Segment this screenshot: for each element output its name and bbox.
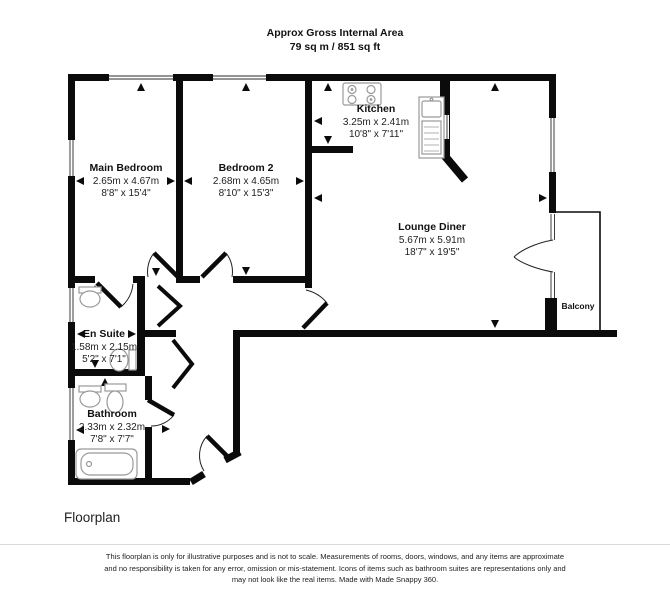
hall-lounge-door-leaf — [303, 303, 327, 328]
room-label-kitchen: Kitchen 3.25m x 2.41m 10'8" x 7'11" — [343, 103, 409, 140]
window — [549, 118, 556, 172]
walls — [68, 74, 617, 485]
arrow-down-icon — [324, 136, 332, 144]
arrow-down-icon — [152, 268, 160, 276]
arrow-left-icon — [314, 117, 322, 125]
arrow-up-icon — [242, 83, 250, 91]
door-arc — [151, 415, 174, 426]
room-imperial: 8'10" x 15'3" — [219, 188, 274, 199]
window — [68, 288, 75, 322]
room-imperial: 10'8" x 7'11" — [349, 129, 404, 140]
arrow-up-icon — [491, 83, 499, 91]
arrow-up-icon — [324, 83, 332, 91]
window — [109, 74, 173, 81]
room-metric: 5.67m x 5.91m — [399, 235, 465, 246]
balcony-door-arc — [514, 257, 553, 272]
entrance-wall-segment — [191, 474, 204, 482]
main-bedroom-door-leaf — [154, 253, 178, 277]
window — [68, 140, 75, 176]
room-name: Bathroom — [87, 408, 137, 420]
arrow-down-icon — [242, 267, 250, 275]
front-door-leaf — [207, 436, 228, 457]
room-label-bathroom: Bathroom 2.33m x 2.32m 7'8" x 7'7" — [79, 408, 145, 445]
room-label-balcony: Balcony — [561, 301, 594, 311]
kitchen-angled-wall — [444, 155, 465, 180]
disclaimer-line: may not look like the real items. Made w… — [0, 574, 670, 586]
room-label-lounge-diner: Lounge Diner 5.67m x 5.91m 18'7" x 19'5" — [398, 221, 466, 258]
room-metric: 3.25m x 2.41m — [343, 117, 409, 128]
door-arc — [121, 284, 133, 307]
arrow-left-icon — [314, 194, 322, 202]
arrow-down-icon — [491, 320, 499, 328]
doors — [97, 240, 553, 471]
disclaimer-line: and no responsibility is taken for any e… — [0, 563, 670, 575]
balcony-door-glazing — [549, 272, 557, 298]
door-arc — [226, 253, 232, 277]
floorplan-svg: Main Bedroom 2.65m x 4.67m 8'8" x 15'4" … — [0, 0, 670, 598]
room-imperial: 8'8" x 15'4" — [101, 188, 151, 199]
arrow-right-icon — [539, 194, 547, 202]
door-arc — [148, 253, 154, 277]
arrow-up-icon — [137, 83, 145, 91]
hall-cupboard-doors — [158, 286, 180, 326]
floorplan-page: Approx Gross Internal Area 79 sq m / 851… — [0, 0, 670, 598]
room-metric: 2.65m x 4.67m — [93, 176, 159, 187]
room-name: Main Bedroom — [90, 162, 163, 174]
balcony-outline — [556, 212, 600, 330]
room-imperial: 7'8" x 7'7" — [90, 434, 134, 445]
basin-icon — [79, 386, 101, 407]
arrow-right-icon — [162, 425, 170, 433]
arrow-right-icon — [128, 330, 136, 338]
basin-icon — [79, 287, 101, 307]
arrow-right-icon — [167, 177, 175, 185]
disclaimer: This floorplan is only for illustrative … — [0, 544, 670, 586]
balcony-door-arc — [514, 240, 553, 257]
arrow-left-icon — [76, 177, 84, 185]
windows — [68, 74, 557, 440]
room-metric: 2.68m x 4.65m — [213, 176, 279, 187]
bathroom-door-leaf — [148, 400, 174, 415]
stove-icon — [343, 83, 381, 105]
room-imperial: 18'7" x 19'5" — [405, 247, 460, 258]
room-metric: 2.33m x 2.32m — [79, 422, 145, 433]
kitchen-sink-icon — [419, 97, 444, 158]
wall-structure — [68, 74, 617, 485]
room-metric: 1.58m x 2.15m — [71, 342, 137, 353]
disclaimer-line: This floorplan is only for illustrative … — [0, 551, 670, 563]
window — [213, 74, 266, 81]
arrow-left-icon — [184, 177, 192, 185]
arrow-right-icon — [296, 177, 304, 185]
door-arc — [306, 290, 327, 303]
room-imperial: 5'2" x 7'1" — [82, 354, 126, 365]
room-name: En Suite — [83, 328, 125, 340]
corridor-cupboard-doors — [173, 340, 192, 388]
room-name: Bedroom 2 — [219, 162, 274, 174]
window — [68, 388, 75, 440]
bathtub-icon — [76, 449, 137, 479]
floorplan-caption: Floorplan — [64, 510, 120, 525]
room-name: Lounge Diner — [398, 221, 466, 233]
room-label-bedroom-2: Bedroom 2 2.68m x 4.65m 8'10" x 15'3" — [213, 162, 279, 199]
room-label-main-bedroom: Main Bedroom 2.65m x 4.67m 8'8" x 15'4" — [90, 162, 163, 199]
door-arc — [199, 436, 207, 471]
bedroom-2-door-leaf — [202, 253, 226, 277]
balcony-door-glazing — [549, 214, 557, 240]
room-name: Kitchen — [357, 103, 396, 115]
